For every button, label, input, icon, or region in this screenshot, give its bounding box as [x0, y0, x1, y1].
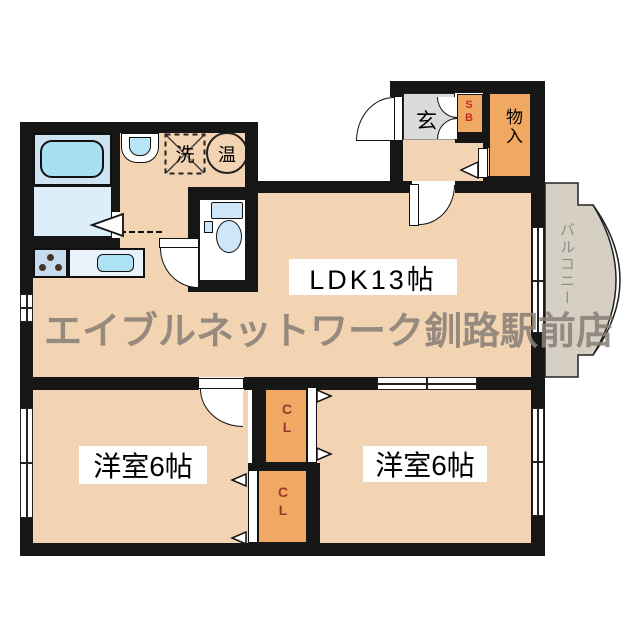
- window-bedroom-right: [532, 408, 544, 516]
- washroom-opening: [120, 231, 162, 233]
- window-bedroom-left: [20, 408, 33, 518]
- water-heater-label: 温: [206, 141, 248, 167]
- storage-door-triangle: [458, 160, 480, 180]
- wall: [33, 377, 199, 390]
- closet-bottom-door: [248, 470, 258, 543]
- washroom-door-leaf: [159, 238, 199, 248]
- wall: [477, 377, 531, 390]
- toilet-bowl: [216, 220, 242, 253]
- wall: [483, 91, 489, 148]
- storage-label: 物入: [500, 108, 525, 170]
- stove-burner: [39, 264, 46, 271]
- closet-door-triangle: [315, 388, 333, 404]
- kitchen-stove: [33, 248, 68, 278]
- bedroom-left-door-leaf: [198, 378, 244, 389]
- wall: [188, 187, 258, 200]
- stove-burner: [55, 264, 62, 271]
- wall: [307, 470, 320, 553]
- toilet-tank: [211, 202, 243, 219]
- entrance-door-leaf: [394, 96, 403, 141]
- wall: [252, 385, 265, 470]
- closet-bottom-label: CL: [275, 484, 291, 530]
- window-bedroom-right-top: [377, 377, 477, 390]
- wall: [258, 181, 393, 193]
- closet-door-triangle: [315, 446, 333, 462]
- entrance-label: 玄: [416, 105, 437, 135]
- bedroom-right-label: 洋室6帖: [363, 446, 487, 482]
- window-ldk-left: [20, 294, 33, 322]
- washer-label: 洗: [164, 140, 206, 167]
- wall: [455, 133, 483, 143]
- wall: [483, 176, 533, 186]
- stove-burner: [47, 254, 54, 261]
- wall: [390, 81, 545, 93]
- wall: [20, 543, 545, 556]
- toilet-handle: [204, 221, 213, 233]
- shoe-box-label: SB: [463, 99, 475, 131]
- floorplan-canvas: バルコニー 洗 温: [0, 0, 640, 640]
- watermark: エイブルネットワーク釧路駅前店: [44, 300, 614, 355]
- washbasin-bowl: [129, 137, 151, 156]
- closet-top-label: CL: [279, 401, 295, 447]
- wall: [188, 280, 258, 292]
- closet-door-triangle: [230, 472, 248, 488]
- closet-door-triangle: [230, 530, 248, 546]
- bedroom-left-label: 洋室6帖: [79, 446, 207, 484]
- entrance-door-swing: [356, 97, 394, 141]
- bathtub: [40, 140, 104, 178]
- ldk-floor-upper: [258, 193, 531, 248]
- kitchen-sink: [97, 254, 134, 272]
- wall: [390, 81, 403, 97]
- ldk-label: LDK13帖: [289, 259, 457, 295]
- bath-door-triangle: [88, 211, 126, 239]
- wall: [20, 122, 258, 133]
- ldk-door-leaf: [409, 184, 419, 226]
